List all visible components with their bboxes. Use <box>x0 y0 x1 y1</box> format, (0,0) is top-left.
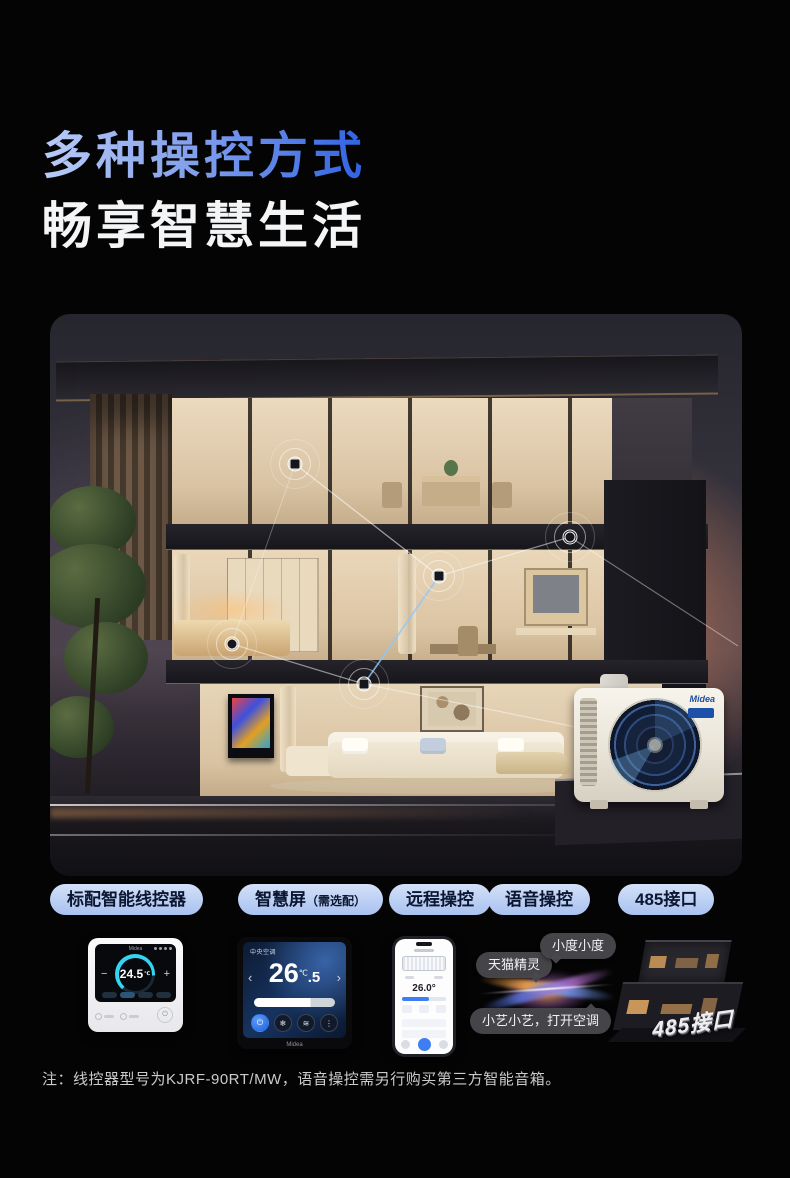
mode-button[interactable]: ❄ <box>274 1014 292 1032</box>
app-temp-slider[interactable] <box>402 997 446 1001</box>
temp-int: 26 <box>269 958 299 988</box>
app-list-row <box>402 1030 446 1038</box>
smart-home-photo: Midea <box>50 314 742 876</box>
smart-screen-device: 中央空调 ‹ 26℃.5 › ⏻ ❄ ≋ ⋮ Midea <box>237 937 352 1049</box>
controller-bezel: ⏻ <box>95 1006 176 1026</box>
pill-label: 智慧屏 <box>255 890 306 909</box>
mode-buttons <box>102 992 171 998</box>
wired-controller-screen: Midea 24.5℃ − + <box>95 944 176 1002</box>
plus-button[interactable]: + <box>164 968 170 980</box>
page-title-line2: 畅享智慧生活 <box>42 186 366 258</box>
smart-screen-display: 中央空调 ‹ 26℃.5 › ⏻ ❄ ≋ ⋮ <box>243 942 346 1038</box>
nav-button[interactable] <box>401 1040 410 1049</box>
app-screen: 26.0° <box>395 939 453 1054</box>
next-arrow[interactable]: › <box>337 970 341 985</box>
temperature-slider[interactable] <box>254 998 335 1007</box>
page-title-line1: 多种操控方式 <box>42 116 366 188</box>
power-button[interactable]: ⏻ <box>157 1007 173 1023</box>
app-list-row <box>402 1019 446 1027</box>
feature-pill-remote-control[interactable]: 远程操控 <box>389 884 491 915</box>
app-controls <box>402 1005 446 1013</box>
temp-unit: ℃ <box>299 969 308 978</box>
pill-suffix: （需选配） <box>306 894 366 908</box>
app-bottom-nav <box>395 1038 453 1051</box>
temp-number: 24.5 <box>120 967 143 981</box>
outdoor-unit-foot <box>690 800 708 809</box>
wired-controller-device: Midea 24.5℃ − + ⏻ <box>88 938 183 1032</box>
feature-pill-wired-controller[interactable]: 标配智能线控器 <box>50 884 203 915</box>
nav-power-button[interactable] <box>418 1038 431 1051</box>
pill-label: 语音操控 <box>505 890 573 909</box>
lit-window <box>705 954 719 968</box>
outdoor-ac-unit: Midea <box>574 688 724 802</box>
outdoor-unit-foot <box>590 800 608 809</box>
bezel-label <box>95 1013 114 1020</box>
midea-logo: Midea <box>689 694 715 704</box>
house-upper-story <box>638 940 731 982</box>
lit-window <box>675 958 699 968</box>
pill-label: 485接口 <box>635 890 697 909</box>
bubble-text: 小度小度 <box>552 938 604 953</box>
status-icons <box>154 947 172 950</box>
temp-unit: ℃ <box>144 971 150 977</box>
voice-bubble-xiaoyi: 小艺小艺，打开空调 <box>470 1008 611 1034</box>
minus-button[interactable]: − <box>101 968 107 980</box>
app-temperature: 26.0° <box>395 983 453 994</box>
outdoor-unit-vent <box>580 698 597 786</box>
feature-pill-voice-control[interactable]: 语音操控 <box>488 884 590 915</box>
bubble-text: 小艺小艺，打开空调 <box>482 1013 599 1028</box>
lit-window <box>649 956 667 968</box>
house-485-graphic: 485接口 <box>602 924 752 1056</box>
fan-button[interactable]: ≋ <box>297 1014 315 1032</box>
pill-label: 远程操控 <box>406 890 474 909</box>
control-buttons: ⏻ ❄ ≋ ⋮ <box>251 1014 338 1032</box>
promo-page: 多种操控方式 畅享智慧生活 <box>0 0 790 1178</box>
feature-pill-smart-screen[interactable]: 智慧屏（需选配） <box>238 884 383 915</box>
nav-button[interactable] <box>439 1040 448 1049</box>
app-title-bar <box>414 949 434 952</box>
outdoor-unit-badge <box>688 708 714 718</box>
temp-dec: .5 <box>308 969 321 986</box>
phone-notch <box>416 942 432 946</box>
midea-logo: Midea <box>129 946 143 952</box>
temperature-value: 26℃.5 <box>243 958 346 989</box>
more-button[interactable]: ⋮ <box>320 1014 338 1032</box>
bubble-text: 天猫精灵 <box>488 957 540 972</box>
lit-window <box>626 1000 649 1014</box>
power-button[interactable]: ⏻ <box>251 1014 269 1032</box>
midea-logo: Midea <box>286 1042 302 1048</box>
room-label: 中央空调 <box>250 947 276 956</box>
feature-pill-485-port[interactable]: 485接口 <box>618 884 714 915</box>
footnote: 注：线控器型号为KJRF-90RT/MW，语音操控需另行购买第三方智能音箱。 <box>42 1068 561 1089</box>
temperature-value: 24.5℃ <box>115 954 155 994</box>
bezel-label <box>120 1013 139 1020</box>
pill-label: 标配智能线控器 <box>67 890 186 909</box>
smartphone: 26.0° <box>392 936 456 1057</box>
voice-bubble-tmall: 天猫精灵 <box>476 952 552 978</box>
ac-grille-image <box>402 956 446 971</box>
quick-icons <box>405 976 443 979</box>
